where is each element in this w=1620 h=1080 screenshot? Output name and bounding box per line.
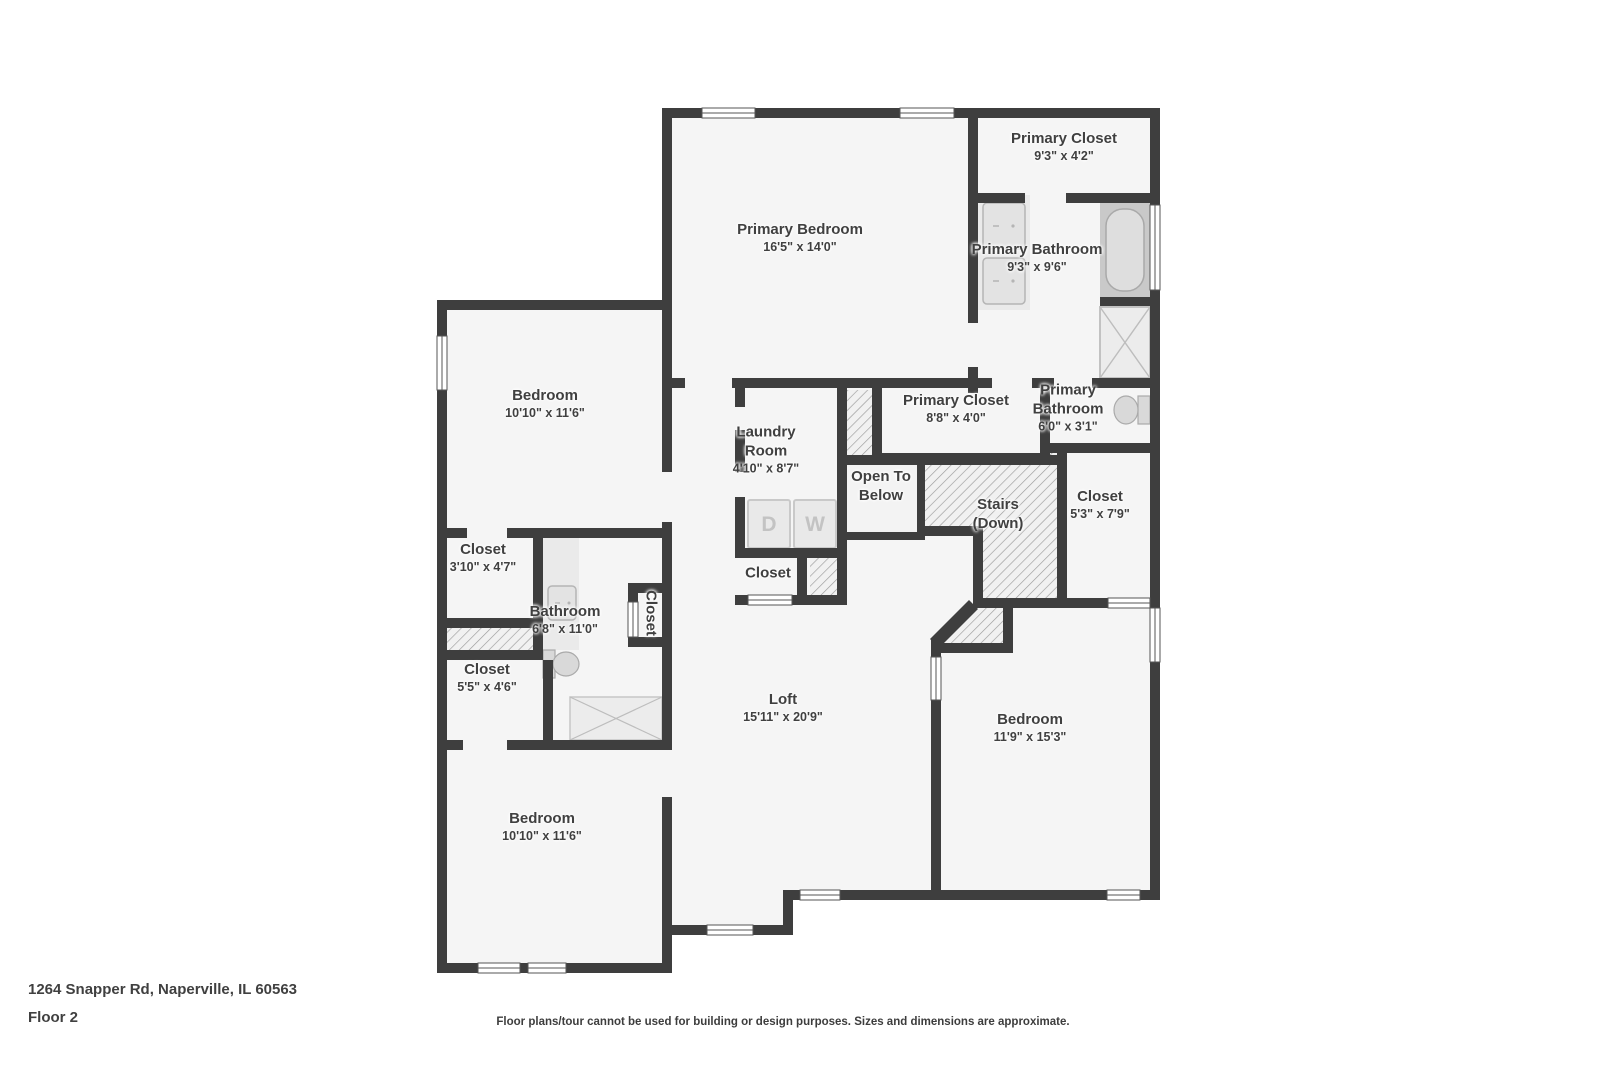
dryer-icon (748, 500, 790, 548)
open-to-below-void (845, 463, 917, 532)
shower-icon (1100, 307, 1150, 378)
hatch-passage (447, 628, 533, 650)
stairs-hatch-lower (983, 527, 1057, 598)
floor-plan-page: Primary Bedroom 16'5" x 14'0" Primary Cl… (0, 0, 1620, 1080)
toilet-icon (1114, 396, 1150, 424)
floor-plan-drawing (0, 0, 1620, 1080)
hatch-chase (847, 390, 872, 456)
vanity-icon (543, 538, 579, 650)
hatch-closet-side (810, 558, 837, 595)
bathtub-icon (1100, 203, 1150, 297)
stairs-hatch-upper (925, 465, 1057, 527)
address-text: 1264 Snapper Rd, Naperville, IL 60563 (28, 982, 297, 997)
disclaimer-text: Floor plans/tour cannot be used for buil… (0, 1016, 1566, 1028)
washer-icon (794, 500, 836, 548)
double-vanity-icon (978, 195, 1030, 310)
tub-area-icon (570, 697, 662, 740)
